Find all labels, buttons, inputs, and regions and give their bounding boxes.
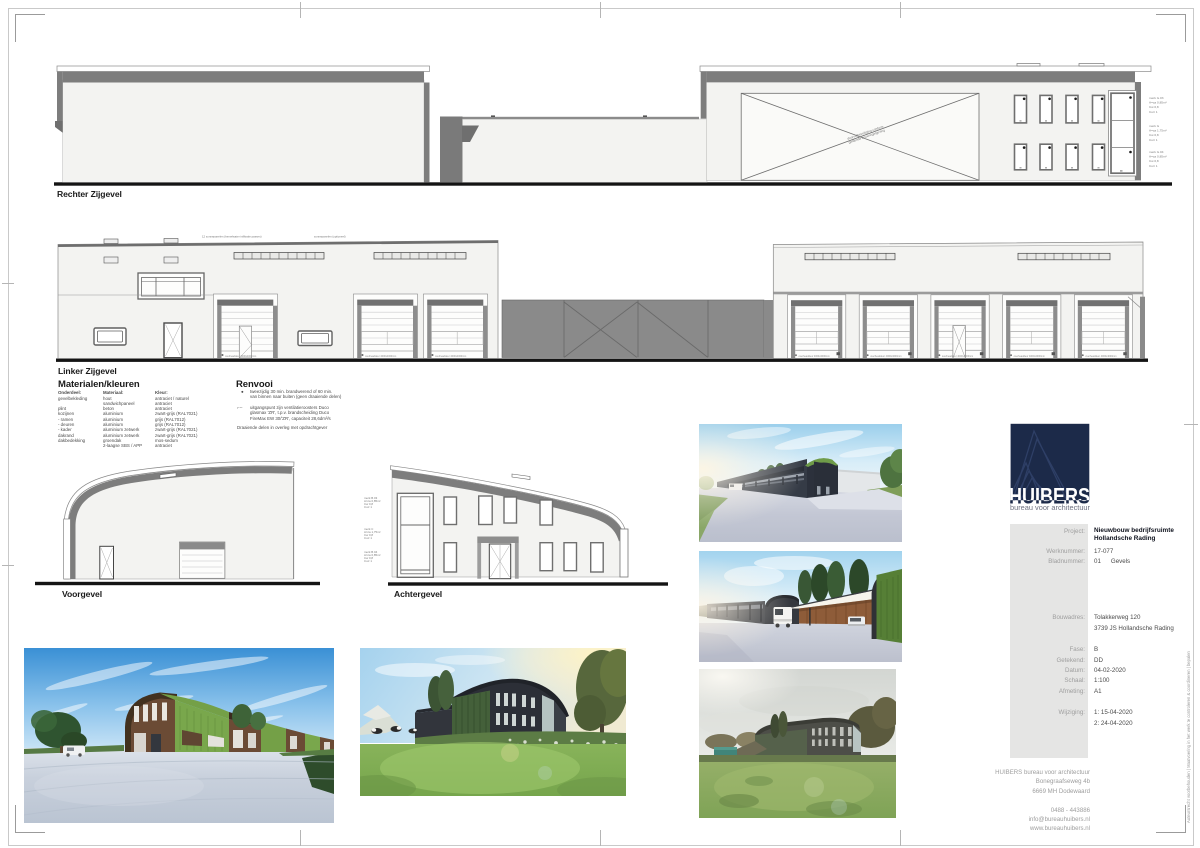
svg-text:merk G.03: merk G.03 (1149, 96, 1164, 100)
svg-text:A=ca 0,85m²: A=ca 0,85m² (1149, 101, 1167, 105)
svg-text:overheaddeur 4000x4000mm: overheaddeur 4000x4000mm (870, 355, 901, 358)
svg-text:merk G.04: merk G.04 (1149, 150, 1164, 154)
svg-text:merk G: merk G (1149, 124, 1160, 128)
svg-text:Cw 0,8: Cw 0,8 (1149, 133, 1159, 137)
svg-text:overheaddeur 4000x4000mm: overheaddeur 4000x4000mm (799, 355, 830, 358)
svg-text:Curr 1: Curr 1 (1149, 138, 1158, 142)
svg-text:overheaddeur 4000x4000mm: overheaddeur 4000x4000mm (942, 355, 973, 358)
svg-text:overheaddeur 4000x4000mm: overheaddeur 4000x4000mm (225, 355, 256, 358)
svg-text:Curr 1: Curr 1 (364, 536, 372, 540)
svg-text:overheaddeur 4000x4000mm: overheaddeur 4000x4000mm (435, 355, 466, 358)
svg-text:Curr 1: Curr 1 (364, 559, 372, 563)
svg-text:12 zonnepanelen (hemelwater in: 12 zonnepanelen (hemelwater infiltratie … (202, 235, 262, 239)
svg-text:Curr 1: Curr 1 (1149, 164, 1158, 168)
svg-text:Curr 1: Curr 1 (364, 505, 372, 509)
svg-text:bureau voor architectuur: bureau voor architectuur (1010, 504, 1091, 511)
svg-text:Cw 0,8: Cw 0,8 (1149, 159, 1159, 163)
svg-text:overheaddeur 4000x4000mm: overheaddeur 4000x4000mm (1085, 355, 1116, 358)
svg-text:Curr 1: Curr 1 (1149, 110, 1158, 114)
svg-text:overheaddeur 4000x4000mm: overheaddeur 4000x4000mm (365, 355, 396, 358)
svg-text:A=ca 0,85m²: A=ca 0,85m² (1149, 155, 1167, 159)
svg-text:zonnepanelen (optioneel): zonnepanelen (optioneel) (314, 235, 346, 239)
svg-text:A=ca 1,75m²: A=ca 1,75m² (1149, 129, 1167, 133)
svg-text:Cw 0,8: Cw 0,8 (1149, 105, 1159, 109)
svg-text:overheaddeur 4000x4000mm: overheaddeur 4000x4000mm (1014, 355, 1045, 358)
